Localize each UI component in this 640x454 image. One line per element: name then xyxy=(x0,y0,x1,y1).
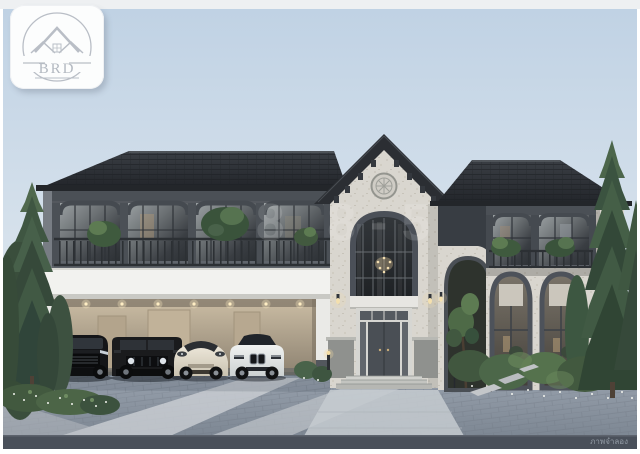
brd-logo: BRD xyxy=(10,5,104,89)
carport-fascia xyxy=(34,268,336,298)
front-door xyxy=(356,308,412,378)
parked-cars xyxy=(48,334,286,382)
rendering-canvas: 8 8-5 BRD ภาพจำลอง xyxy=(0,0,640,454)
wall-sconce xyxy=(435,292,447,304)
tower-arch-window xyxy=(353,214,415,300)
caption-text: ภาพจำลอง xyxy=(590,435,628,448)
black-suv xyxy=(112,337,182,379)
brd-logo-text: BRD xyxy=(39,61,76,77)
entrance-steps xyxy=(336,376,432,389)
brd-logo-emblem-icon: BRD xyxy=(10,5,104,89)
wall-sconce xyxy=(330,292,346,308)
door-handle xyxy=(379,349,381,351)
medallion-ornament xyxy=(372,174,397,199)
logo-rooftops-icon xyxy=(31,28,83,53)
door-handle xyxy=(387,349,389,351)
road-strip xyxy=(3,435,637,449)
